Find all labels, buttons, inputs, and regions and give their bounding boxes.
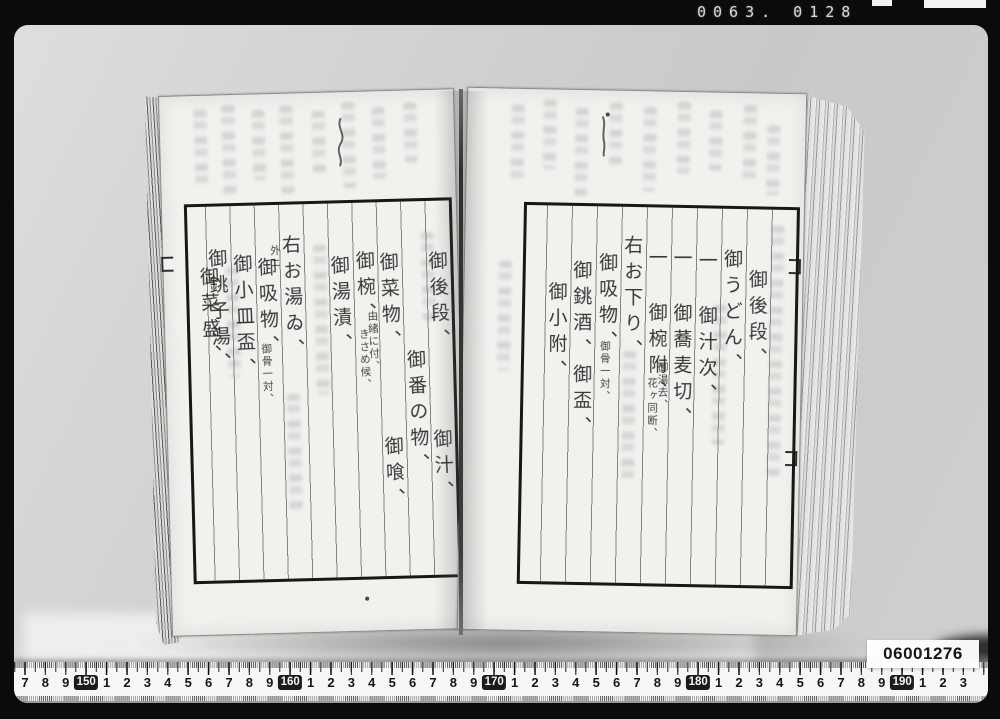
stitch-mark: [161, 257, 173, 272]
ruler-number: 6: [613, 675, 620, 690]
gutter-shading: [463, 91, 489, 631]
ruler-number: 5: [593, 675, 600, 690]
ruler-number: 150: [74, 675, 98, 690]
bleed-through-ghost-text: [497, 260, 512, 370]
bleed-through-ghost-text: [766, 126, 780, 196]
text-columns: 御後段、御うどん、一 御汁次、一 御蕎麦切、一 御椀附、御湯去、花ヶ同断、右お下…: [520, 205, 797, 586]
bleed-through-ghost-text: [193, 110, 208, 188]
ruler-number: 4: [572, 675, 579, 690]
ruler-number: 6: [205, 675, 212, 690]
stray-ink-mark: [332, 116, 351, 168]
film-edge-strip: [872, 0, 892, 6]
bleed-through-ghost-text: [642, 107, 657, 191]
text-block-frame: 御後段、御汁、御番の物、御菜物、御喰、御椀、由緒に付、きさめ候、御湯漬、右お湯ゐ…: [184, 197, 462, 584]
ruler-number: 9: [470, 675, 477, 690]
ruler-number: 1: [919, 675, 926, 690]
ruler-number: 160: [278, 675, 302, 690]
ruler-number: 4: [368, 675, 375, 690]
ruler-number: 7: [633, 675, 640, 690]
ruler-number: 2: [123, 675, 130, 690]
bleed-through-ghost-text: [510, 105, 525, 185]
bleed-through-ghost-text: [221, 105, 236, 197]
manuscript-text: 右お下り、: [620, 235, 644, 365]
ruler-number: 6: [817, 675, 824, 690]
film-frame-background: 0063. 0128 御後段、御汁、御番の物、御菜物、御喰、御椀、由緒に付、きさ…: [0, 0, 1000, 719]
ruler-number: 170: [482, 675, 506, 690]
bleed-through-ghost-text: [371, 107, 386, 179]
photograph: 御後段、御汁、御番の物、御菜物、御喰、御椀、由緒に付、きさめ候、御湯漬、右お湯ゐ…: [14, 25, 988, 703]
ruler-number: 180: [686, 675, 710, 690]
bleed-through-ghost-text: [279, 105, 294, 193]
measuring-ruler: 7891501234567891601234567891701234567891…: [14, 662, 988, 703]
ruler-number: 8: [246, 675, 253, 690]
ruler-number: 3: [144, 675, 151, 690]
ruler-number: 6: [409, 675, 416, 690]
ruler-number: 9: [266, 675, 273, 690]
manuscript-text: 一 御蕎麦切、: [669, 248, 693, 433]
bleed-through-ghost-text: [311, 111, 326, 175]
gutter-shading: [434, 91, 460, 631]
manuscript-page-right: 御後段、御うどん、一 御汁次、一 御蕎麦切、一 御椀附、御湯去、花ヶ同断、右お下…: [457, 87, 807, 636]
ruler-number: 190: [890, 675, 914, 690]
ruler-number: 5: [185, 675, 192, 690]
ruler-number: 9: [878, 675, 885, 690]
ruler-number: 8: [450, 675, 457, 690]
ruler-number: 7: [21, 675, 28, 690]
ruler-number: 3: [756, 675, 763, 690]
book-gutter-fold: [459, 89, 463, 635]
manuscript-text: 御湯漬、: [327, 255, 356, 360]
ruler-number: 7: [837, 675, 844, 690]
ruler-number: 2: [327, 675, 334, 690]
text-columns: 御後段、御汁、御番の物、御菜物、御喰、御椀、由緒に付、きさめ候、御湯漬、右お湯ゐ…: [187, 200, 459, 581]
bleed-through-ghost-text: [403, 102, 418, 162]
ruler-number: 2: [531, 675, 538, 690]
ruler-number: 8: [654, 675, 661, 690]
bleed-through-ghost-text: [677, 102, 691, 174]
bleed-through-ghost-text: [543, 99, 557, 169]
ruler-number: 1: [715, 675, 722, 690]
manuscript-text: 御骨一対、: [599, 340, 611, 403]
ruler-number: 5: [389, 675, 396, 690]
ruler-number: 1: [307, 675, 314, 690]
manuscript-text: 御喰、: [380, 435, 407, 514]
ruler-number: 8: [42, 675, 49, 690]
manuscript-text: 右お湯ゐ、: [277, 234, 307, 365]
manuscript-text: 御湯去、: [656, 362, 668, 412]
ruler-number: 7: [429, 675, 436, 690]
manuscript-text: きさめ候、: [357, 328, 372, 391]
catalog-number-label: 06001276: [867, 640, 979, 668]
ruler-number: 3: [960, 675, 967, 690]
ruler-number: 9: [62, 675, 69, 690]
manuscript-text: 御番の物、: [402, 349, 432, 480]
manuscript-text: 御小附、: [544, 282, 568, 386]
ruler-number: 3: [552, 675, 559, 690]
bleed-through-ghost-text: [709, 110, 723, 170]
bleed-through-ghost-text: [574, 108, 589, 196]
bleed-through-ghost-text: [251, 110, 266, 180]
ruler-number: 4: [164, 675, 171, 690]
film-edge-strip: [924, 0, 986, 8]
manuscript-text: 一 御汁次、: [694, 250, 718, 409]
stray-ink-mark: [595, 110, 612, 158]
bleed-through-ghost-text: [742, 105, 756, 183]
frame-counter: 0063. 0128: [697, 3, 857, 21]
manuscript-text: 御菜物、: [375, 251, 404, 356]
ruler-number: 9: [674, 675, 681, 690]
text-block-frame: 御後段、御うどん、一 御汁次、一 御蕎麦切、一 御椀附、御湯去、花ヶ同断、右お下…: [517, 202, 800, 589]
ruler-number: 2: [735, 675, 742, 690]
ruler-number: 5: [797, 675, 804, 690]
ruler-number: 7: [225, 675, 232, 690]
ruler-number: 1: [103, 675, 110, 690]
manuscript-text: 御後段、: [745, 269, 769, 373]
manuscript-text: 御銚酒、御盃、: [569, 260, 593, 442]
manuscript-text: 花ヶ同断、: [646, 377, 658, 440]
ruler-number: 8: [858, 675, 865, 690]
bleed-through-area: [468, 88, 806, 94]
ruler-number: 1: [511, 675, 518, 690]
bleed-through-area: [159, 89, 453, 97]
ruler-number: 4: [776, 675, 783, 690]
manuscript-page-left: 御後段、御汁、御番の物、御菜物、御喰、御椀、由緒に付、きさめ候、御湯漬、右お湯ゐ…: [158, 88, 468, 637]
ruler-number: 3: [348, 675, 355, 690]
ink-dot: [365, 597, 369, 601]
manuscript-text: 御うどん、: [720, 249, 744, 379]
ruler-baseline: [14, 701, 988, 703]
ruler-number: 2: [939, 675, 946, 690]
